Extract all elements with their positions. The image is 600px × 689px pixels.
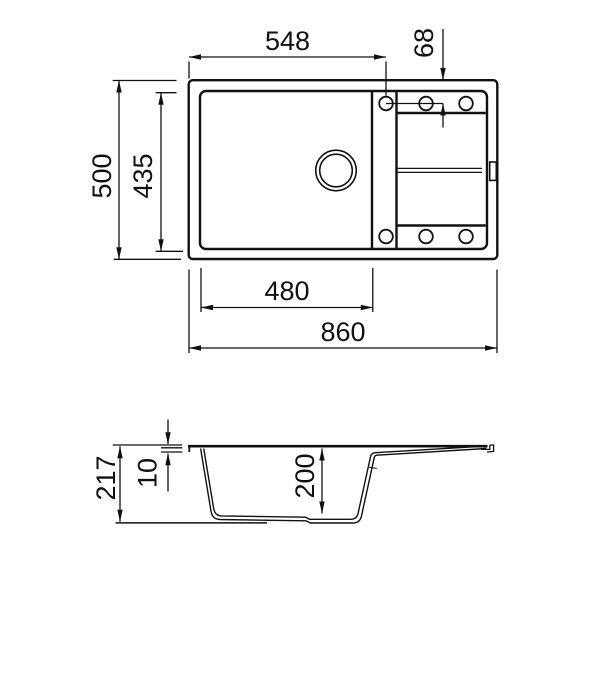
arrowhead-up (158, 93, 163, 105)
arrowhead-left (201, 305, 213, 310)
arrowhead-right (485, 345, 497, 350)
arrowhead-right (374, 54, 386, 59)
shell-inner-profile (204, 446, 487, 519)
arrowhead-left (189, 54, 201, 59)
dimension-860: 860 (189, 270, 497, 354)
arrowhead-down (158, 239, 163, 251)
arrowhead-down (165, 432, 170, 444)
faucet-hole (419, 230, 433, 244)
arrowhead-up (319, 449, 324, 461)
arrowhead-down (117, 510, 122, 522)
drain-outer-circle (316, 150, 357, 191)
side-view: 217 10 200 (91, 420, 494, 524)
dim-548-label: 548 (265, 26, 310, 56)
dimension-200: 200 (290, 449, 325, 514)
drain-inner-circle (320, 154, 353, 187)
top-view: 548 68 500 435 (87, 26, 497, 353)
faucet-hole (459, 97, 473, 111)
dim-500-label: 500 (87, 153, 117, 198)
dimension-480: 480 (201, 268, 373, 312)
dim-68-label: 68 (409, 28, 439, 58)
faucet-hole (459, 230, 473, 244)
dimension-10: 10 (133, 420, 183, 492)
overflow-slot (490, 162, 497, 180)
wall-tick (369, 467, 377, 468)
dim-217-label: 217 (91, 455, 121, 500)
dimension-548: 548 (189, 26, 386, 96)
dim-860-label: 860 (320, 317, 365, 347)
drain (316, 150, 357, 191)
drawing-canvas: 548 68 500 435 (0, 0, 600, 689)
dimension-435: 435 (128, 93, 183, 252)
faucet-holes (379, 97, 473, 244)
shell-outer-profile (201, 449, 487, 524)
arrowhead-down (116, 247, 121, 259)
sink-technical-drawing: 548 68 500 435 (0, 0, 600, 689)
dim-200-label: 200 (290, 453, 320, 498)
arrowhead-down (319, 502, 324, 514)
arrowhead-right (361, 305, 373, 310)
arrowhead-left (189, 345, 201, 350)
dim-10-label: 10 (133, 458, 163, 488)
faucet-hole (379, 230, 393, 244)
arrowhead-up (116, 81, 121, 93)
dim-435-label: 435 (128, 153, 158, 198)
arrowhead-down (440, 68, 445, 80)
sink-outer-rim (189, 80, 498, 259)
dim-480-label: 480 (264, 276, 309, 306)
arrowhead-up (440, 104, 445, 116)
